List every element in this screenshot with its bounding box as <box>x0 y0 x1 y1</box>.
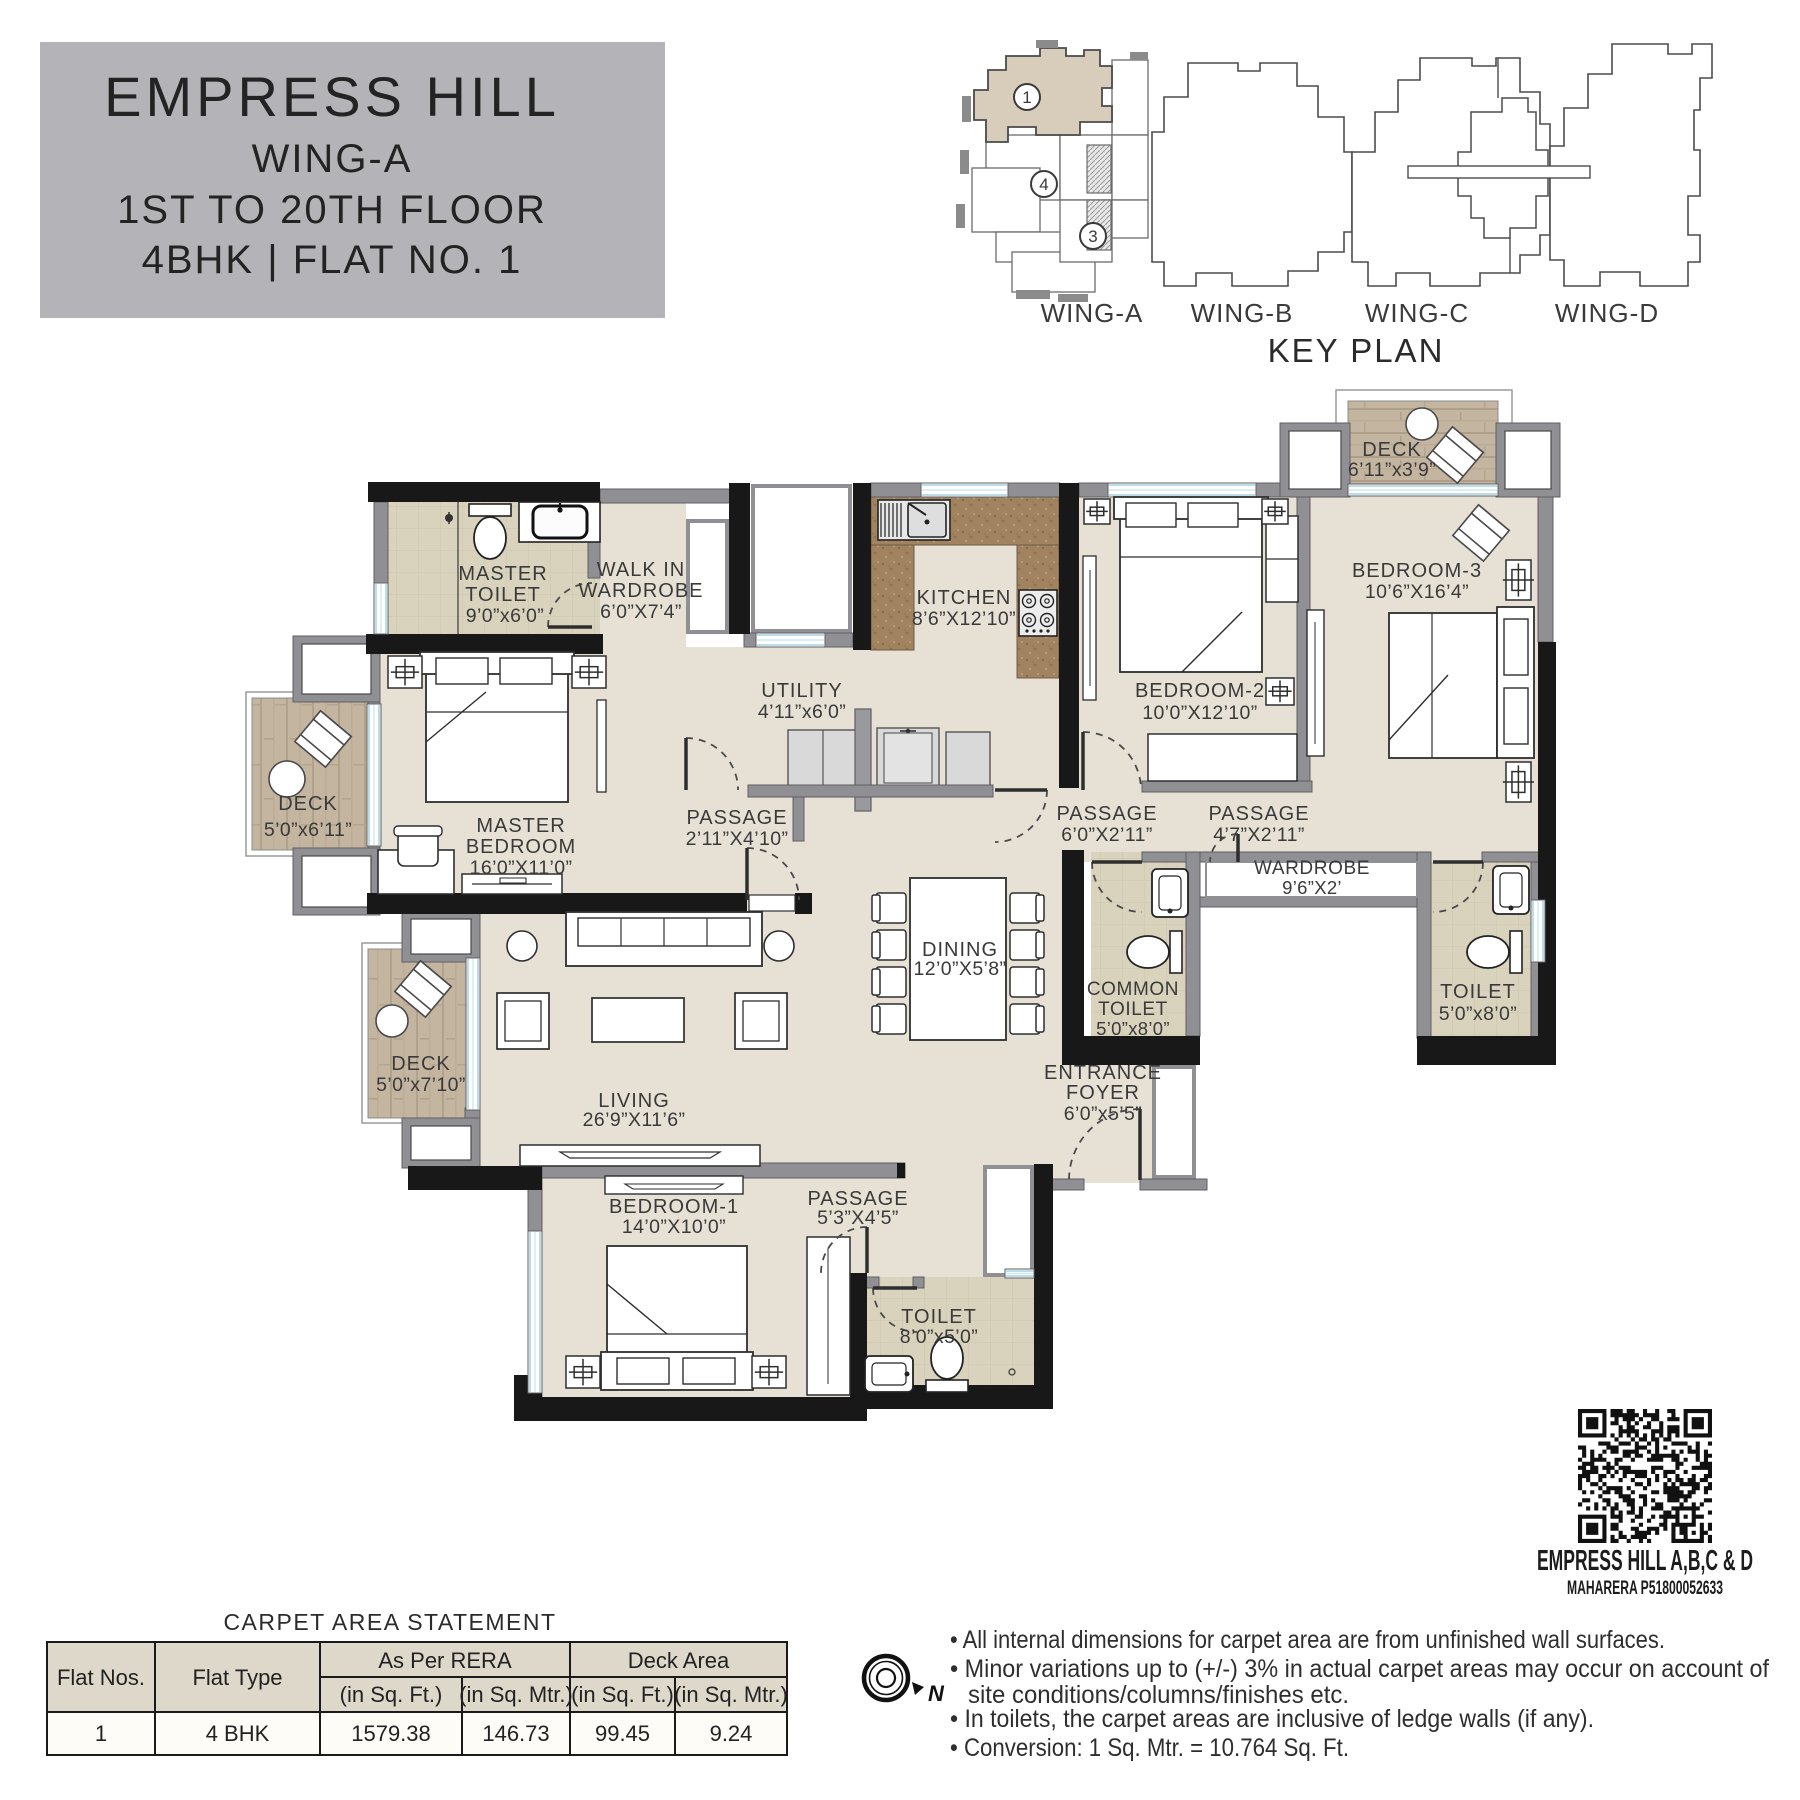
svg-text:1: 1 <box>95 1721 107 1746</box>
svg-text:WARDROBE: WARDROBE <box>1254 858 1370 879</box>
svg-text:• Conversion: 1 Sq. Mtr. = 10.: • Conversion: 1 Sq. Mtr. = 10.764 Sq. Ft… <box>950 1734 1349 1762</box>
svg-text:8’6”X12’10”: 8’6”X12’10” <box>912 608 1016 630</box>
svg-text:PASSAGE: PASSAGE <box>686 807 787 829</box>
svg-text:PASSAGE: PASSAGE <box>1056 803 1157 825</box>
svg-text:99.45: 99.45 <box>595 1721 650 1746</box>
svg-text:WING-A: WING-A <box>1041 298 1144 328</box>
svg-text:26’9”X11’6”: 26’9”X11’6” <box>583 1109 686 1131</box>
svg-text:12’0”X5’8”: 12’0”X5’8” <box>914 958 1007 980</box>
svg-text:WING-C: WING-C <box>1365 298 1469 328</box>
svg-text:4 BHK: 4 BHK <box>206 1721 270 1746</box>
svg-text:9.24: 9.24 <box>710 1721 753 1746</box>
svg-text:(in Sq. Ft.): (in Sq. Ft.) <box>340 1682 443 1707</box>
svg-text:TOILET: TOILET <box>465 584 541 606</box>
svg-text:EMPRESS HILL: EMPRESS HILL <box>104 65 560 128</box>
svg-text:MASTER: MASTER <box>458 563 547 585</box>
svg-text:1579.38: 1579.38 <box>351 1721 431 1746</box>
svg-text:(in Sq. Mtr.): (in Sq. Mtr.) <box>459 1682 573 1707</box>
svg-text:4BHK | FLAT NO. 1: 4BHK | FLAT NO. 1 <box>142 238 523 282</box>
svg-text:Flat Nos.: Flat Nos. <box>57 1665 145 1690</box>
svg-text:1ST TO 20TH FLOOR: 1ST TO 20TH FLOOR <box>117 188 547 232</box>
svg-text:N: N <box>928 1681 945 1706</box>
svg-text:4’7”X2’11”: 4’7”X2’11” <box>1213 824 1304 846</box>
svg-text:• All internal dimensions for: • All internal dimensions for carpet are… <box>950 1626 1665 1654</box>
svg-text:5’0”x6’11”: 5’0”x6’11” <box>264 819 352 841</box>
svg-text:FOYER: FOYER <box>1066 1082 1140 1104</box>
svg-text:6’0”X2’11”: 6’0”X2’11” <box>1061 824 1152 846</box>
svg-text:5’3”X4’5”: 5’3”X4’5” <box>817 1207 899 1229</box>
svg-text:• Minor variations up to (+/-): • Minor variations up to (+/-) 3% in act… <box>950 1655 1769 1683</box>
svg-text:4’11”x6’0”: 4’11”x6’0” <box>758 701 846 723</box>
svg-text:10’6”X16’4”: 10’6”X16’4” <box>1365 581 1469 603</box>
svg-text:10’0”X12’10”: 10’0”X12’10” <box>1142 702 1257 724</box>
svg-text:TOILET: TOILET <box>901 1306 977 1328</box>
svg-text:5’0”x8’0”: 5’0”x8’0” <box>1439 1003 1517 1025</box>
svg-text:WALK IN: WALK IN <box>597 559 686 581</box>
svg-text:6’0”x5’5”: 6’0”x5’5” <box>1064 1103 1142 1125</box>
svg-text:BEDROOM-1: BEDROOM-1 <box>609 1196 739 1218</box>
svg-text:5’0”x7’10”: 5’0”x7’10” <box>376 1074 466 1096</box>
svg-text:TOILET: TOILET <box>1440 981 1516 1003</box>
svg-text:WING-A: WING-A <box>252 137 413 181</box>
svg-text:ENTRANCE: ENTRANCE <box>1044 1062 1162 1084</box>
svg-text:Deck Area: Deck Area <box>628 1648 730 1673</box>
svg-text:WING-B: WING-B <box>1191 298 1294 328</box>
svg-text:3: 3 <box>1088 227 1097 246</box>
svg-text:9’6”X2’: 9’6”X2’ <box>1282 877 1342 898</box>
svg-text:BEDROOM: BEDROOM <box>466 836 576 858</box>
svg-text:6’0”X7’4”: 6’0”X7’4” <box>600 601 682 623</box>
svg-text:6’11”x3’9”: 6’11”x3’9” <box>1348 459 1436 481</box>
svg-text:MASTER: MASTER <box>476 815 565 837</box>
svg-text:COMMON: COMMON <box>1087 979 1179 1000</box>
svg-text:KITCHEN: KITCHEN <box>917 587 1012 609</box>
svg-text:BEDROOM-2: BEDROOM-2 <box>1135 680 1265 702</box>
svg-text:2’11”X4’10”: 2’11”X4’10” <box>686 828 789 850</box>
svg-text:1: 1 <box>1022 88 1031 107</box>
svg-text:DECK: DECK <box>1362 439 1422 461</box>
svg-text:Flat Type: Flat Type <box>192 1665 282 1690</box>
svg-text:KEY PLAN: KEY PLAN <box>1268 332 1445 369</box>
svg-text:TOILET: TOILET <box>1098 999 1168 1020</box>
svg-text:BEDROOM-3: BEDROOM-3 <box>1352 560 1482 582</box>
svg-text:• In toilets, the carpet areas: • In toilets, the carpet areas are inclu… <box>950 1705 1594 1733</box>
svg-text:(in Sq. Ft.): (in Sq. Ft.) <box>571 1682 674 1707</box>
svg-text:4: 4 <box>1039 175 1048 194</box>
svg-text:8’0”x5’0”: 8’0”x5’0” <box>900 1326 978 1348</box>
svg-text:MAHARERA P51800052633: MAHARERA P51800052633 <box>1567 1578 1723 1599</box>
svg-text:PASSAGE: PASSAGE <box>1208 803 1309 825</box>
svg-text:DECK: DECK <box>391 1053 451 1075</box>
svg-text:5’0”x8’0”: 5’0”x8’0” <box>1096 1018 1170 1039</box>
svg-text:WARDROBE: WARDROBE <box>578 580 703 602</box>
svg-text:14’0”X10’0”: 14’0”X10’0” <box>622 1216 726 1238</box>
svg-text:9’0”x6’0”: 9’0”x6’0” <box>466 605 544 627</box>
svg-text:UTILITY: UTILITY <box>761 680 842 702</box>
svg-text:(in Sq. Mtr.): (in Sq. Mtr.) <box>674 1682 788 1707</box>
svg-text:DECK: DECK <box>278 793 338 815</box>
svg-text:146.73: 146.73 <box>482 1721 549 1746</box>
svg-text:WING-D: WING-D <box>1555 298 1659 328</box>
svg-text:CARPET AREA STATEMENT: CARPET AREA STATEMENT <box>223 1609 556 1635</box>
svg-text:As Per RERA: As Per RERA <box>378 1648 512 1673</box>
svg-text:EMPRESS HILL A,B,C & D: EMPRESS HILL A,B,C & D <box>1537 1545 1753 1577</box>
svg-text:16’0”X11’0”: 16’0”X11’0” <box>470 857 573 879</box>
